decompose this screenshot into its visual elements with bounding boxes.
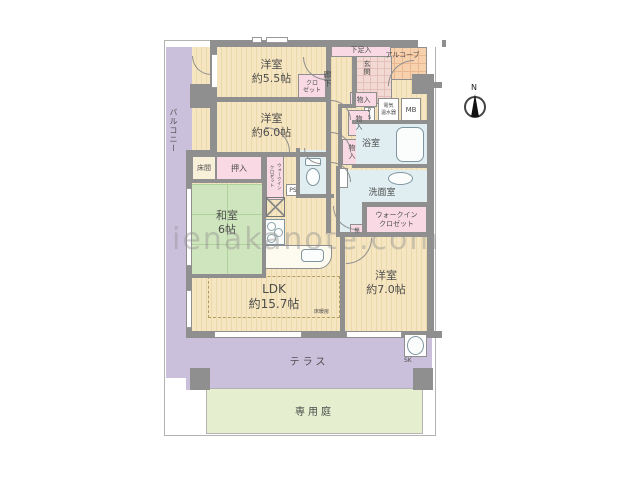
floor-heating-label: 床暖房 [314, 308, 329, 315]
vent-notch [252, 37, 262, 43]
pipe-space2-label: PS [286, 184, 300, 196]
balcony-label: バルコニー [168, 108, 179, 184]
vent-notch [266, 37, 288, 43]
window-opening [346, 332, 402, 337]
entrance-approach-opening [418, 40, 442, 47]
water-heater-label: 電気 温水器 [378, 98, 399, 121]
alcove-label: アルコーブ [378, 49, 427, 60]
bedroom70-label: 洋室 約7.0帖 [345, 266, 427, 300]
wall [430, 82, 442, 88]
wall [427, 88, 434, 338]
window-opening [214, 332, 302, 337]
bathtub-icon [396, 127, 424, 162]
wall [352, 164, 427, 168]
washroom-label: 洗面室 [352, 184, 412, 198]
storage1-label: 物入 [350, 92, 377, 107]
storage3-label: 物入 [342, 140, 362, 164]
entrance-label: 玄関 [362, 60, 372, 88]
balcony-area-lower [166, 154, 187, 378]
oshiire-label: 押入 [216, 156, 262, 180]
terrace-label: テラス [186, 352, 432, 368]
wall [210, 40, 446, 47]
closet-label: クロ ゼット [298, 74, 326, 100]
walk-in-closet-strip-label: ウォークイン クロゼット [266, 153, 284, 199]
toilet-bowl-icon [306, 168, 320, 186]
kitchen-cabinet-icon [266, 197, 285, 217]
private-garden-label: 専用庭 [206, 402, 423, 418]
meter-box-label: MB [401, 98, 421, 121]
slop-sink-label: SK [404, 357, 412, 364]
window-opening [187, 290, 191, 328]
tokonoma-label: 床間 [192, 156, 216, 180]
wall [296, 194, 334, 198]
pipe-space1-label: PS [364, 107, 375, 123]
terrace-pillar [413, 368, 433, 390]
bedroom60-label: 洋室 約6.0帖 [217, 102, 326, 150]
terrace-pillar [190, 368, 210, 390]
floor-plan-canvas: 洋室 約5.5帖 洋室 約6.0帖 洋室 約7.0帖 和室 6帖 LDK 約15… [0, 0, 640, 480]
wall [186, 180, 266, 183]
watermark: ienakanote.com [172, 222, 441, 257]
compass-north-label: N [471, 83, 477, 92]
compass-needle-icon [471, 94, 479, 117]
bathroom-label: 浴室 [362, 136, 380, 149]
